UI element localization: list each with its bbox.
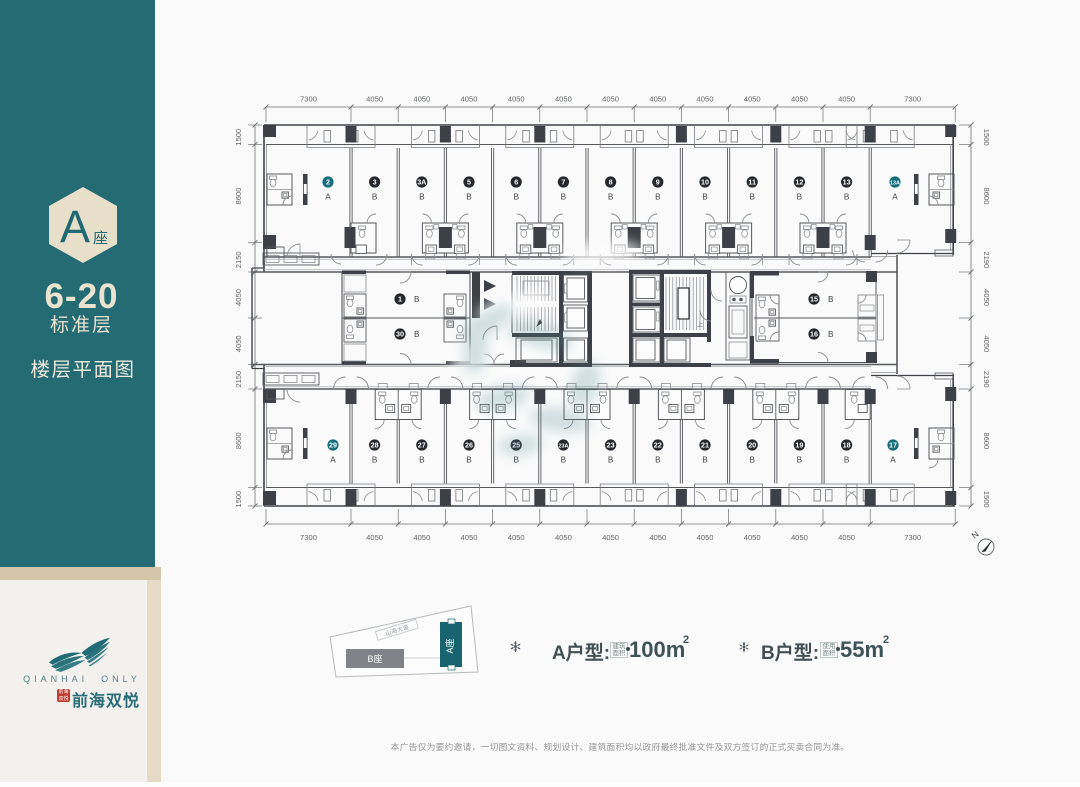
svg-text:B: B: [655, 193, 661, 202]
svg-text:B: B: [749, 193, 755, 202]
svg-text:B: B: [828, 295, 834, 304]
svg-text:29: 29: [329, 440, 337, 449]
svg-text:B: B: [655, 456, 661, 465]
svg-text:4050: 4050: [234, 335, 243, 352]
svg-text:1500: 1500: [234, 491, 243, 508]
svg-text:A: A: [892, 193, 898, 202]
svg-text:4050: 4050: [744, 95, 761, 104]
svg-text:B: B: [419, 193, 425, 202]
svg-text:4050: 4050: [649, 533, 666, 542]
svg-text:B座: B座: [367, 653, 382, 664]
svg-text:B: B: [414, 330, 420, 339]
svg-text:1500: 1500: [982, 129, 991, 146]
svg-text:7300: 7300: [300, 95, 317, 104]
svg-text:18: 18: [843, 440, 851, 449]
svg-text:4050: 4050: [838, 95, 855, 104]
svg-text:6: 6: [514, 177, 518, 186]
svg-text:B: B: [702, 456, 708, 465]
svg-text:13A: 13A: [890, 180, 900, 186]
svg-text:3: 3: [373, 177, 377, 186]
svg-text:4050: 4050: [413, 533, 430, 542]
svg-text:27: 27: [418, 440, 426, 449]
svg-text:20: 20: [748, 440, 756, 449]
svg-text:16: 16: [810, 329, 818, 338]
svg-text:4050: 4050: [602, 95, 619, 104]
svg-text:N: N: [970, 529, 981, 541]
svg-text:19: 19: [795, 440, 803, 449]
svg-text:9: 9: [656, 177, 660, 186]
svg-text:B: B: [608, 456, 614, 465]
svg-text:1500: 1500: [234, 129, 243, 146]
svg-text:A座: A座: [444, 638, 455, 653]
svg-text:B: B: [513, 193, 519, 202]
svg-text:4050: 4050: [697, 533, 714, 542]
svg-text:5: 5: [467, 177, 471, 186]
svg-text:3A: 3A: [417, 177, 426, 186]
svg-text:30: 30: [396, 329, 404, 338]
svg-text:7300: 7300: [904, 95, 921, 104]
svg-text:4050: 4050: [744, 533, 761, 542]
svg-text:8600: 8600: [234, 188, 243, 205]
svg-text:4050: 4050: [555, 533, 572, 542]
svg-text:8600: 8600: [234, 432, 243, 449]
svg-text:4050: 4050: [697, 95, 714, 104]
svg-text:B: B: [414, 295, 420, 304]
svg-text:B: B: [513, 456, 519, 465]
svg-text:21: 21: [701, 440, 709, 449]
svg-text:2190: 2190: [982, 251, 991, 268]
svg-text:A: A: [325, 193, 331, 202]
svg-text:2150: 2150: [234, 371, 243, 388]
svg-text:4050: 4050: [508, 533, 525, 542]
svg-text:12: 12: [795, 177, 803, 186]
svg-text:B: B: [466, 456, 472, 465]
svg-text:10: 10: [701, 177, 709, 186]
svg-text:4050: 4050: [461, 95, 478, 104]
svg-text:B: B: [466, 193, 472, 202]
svg-text:7300: 7300: [300, 533, 317, 542]
svg-text:B: B: [844, 193, 850, 202]
svg-text:15: 15: [810, 294, 818, 303]
svg-text:B: B: [372, 193, 378, 202]
svg-text:4050: 4050: [602, 533, 619, 542]
svg-text:B: B: [372, 456, 378, 465]
svg-text:A: A: [330, 456, 336, 465]
svg-text:26: 26: [465, 440, 473, 449]
svg-text:B: B: [608, 193, 614, 202]
svg-text:4050: 4050: [234, 289, 243, 306]
svg-text:B: B: [419, 456, 425, 465]
svg-text:1: 1: [398, 294, 402, 303]
svg-text:2190: 2190: [982, 371, 991, 388]
svg-text:A: A: [890, 456, 896, 465]
svg-text:11: 11: [748, 177, 756, 186]
svg-text:22: 22: [654, 440, 662, 449]
svg-text:上: 上: [697, 321, 703, 329]
svg-text:4050: 4050: [791, 95, 808, 104]
svg-text:8: 8: [609, 177, 613, 186]
svg-text:2150: 2150: [234, 251, 243, 268]
svg-text:2: 2: [326, 177, 330, 186]
svg-text:13: 13: [843, 177, 851, 186]
svg-text:8600: 8600: [982, 188, 991, 205]
svg-text:B: B: [561, 193, 567, 202]
svg-text:4050: 4050: [649, 95, 666, 104]
svg-text:4050: 4050: [461, 533, 478, 542]
svg-text:4050: 4050: [982, 289, 991, 306]
svg-text:23A: 23A: [558, 443, 568, 449]
svg-text:4050: 4050: [791, 533, 808, 542]
svg-text:1500: 1500: [982, 491, 991, 508]
svg-text:23: 23: [607, 440, 615, 449]
svg-text:4050: 4050: [366, 533, 383, 542]
svg-text:8600: 8600: [982, 432, 991, 449]
svg-text:B: B: [561, 456, 567, 465]
svg-text:4050: 4050: [508, 95, 525, 104]
svg-text:17: 17: [889, 440, 897, 449]
svg-text:7: 7: [561, 177, 565, 186]
svg-text:B: B: [844, 456, 850, 465]
svg-text:B: B: [749, 456, 755, 465]
svg-text:4050: 4050: [366, 95, 383, 104]
svg-text:B: B: [797, 193, 803, 202]
svg-text:B: B: [702, 193, 708, 202]
svg-text:4050: 4050: [838, 533, 855, 542]
svg-text:B: B: [797, 456, 803, 465]
svg-text:B: B: [828, 330, 834, 339]
svg-text:7300: 7300: [904, 533, 921, 542]
svg-text:4050: 4050: [413, 95, 430, 104]
svg-text:4050: 4050: [982, 335, 991, 352]
svg-text:4050: 4050: [555, 95, 572, 104]
svg-text:28: 28: [371, 440, 379, 449]
